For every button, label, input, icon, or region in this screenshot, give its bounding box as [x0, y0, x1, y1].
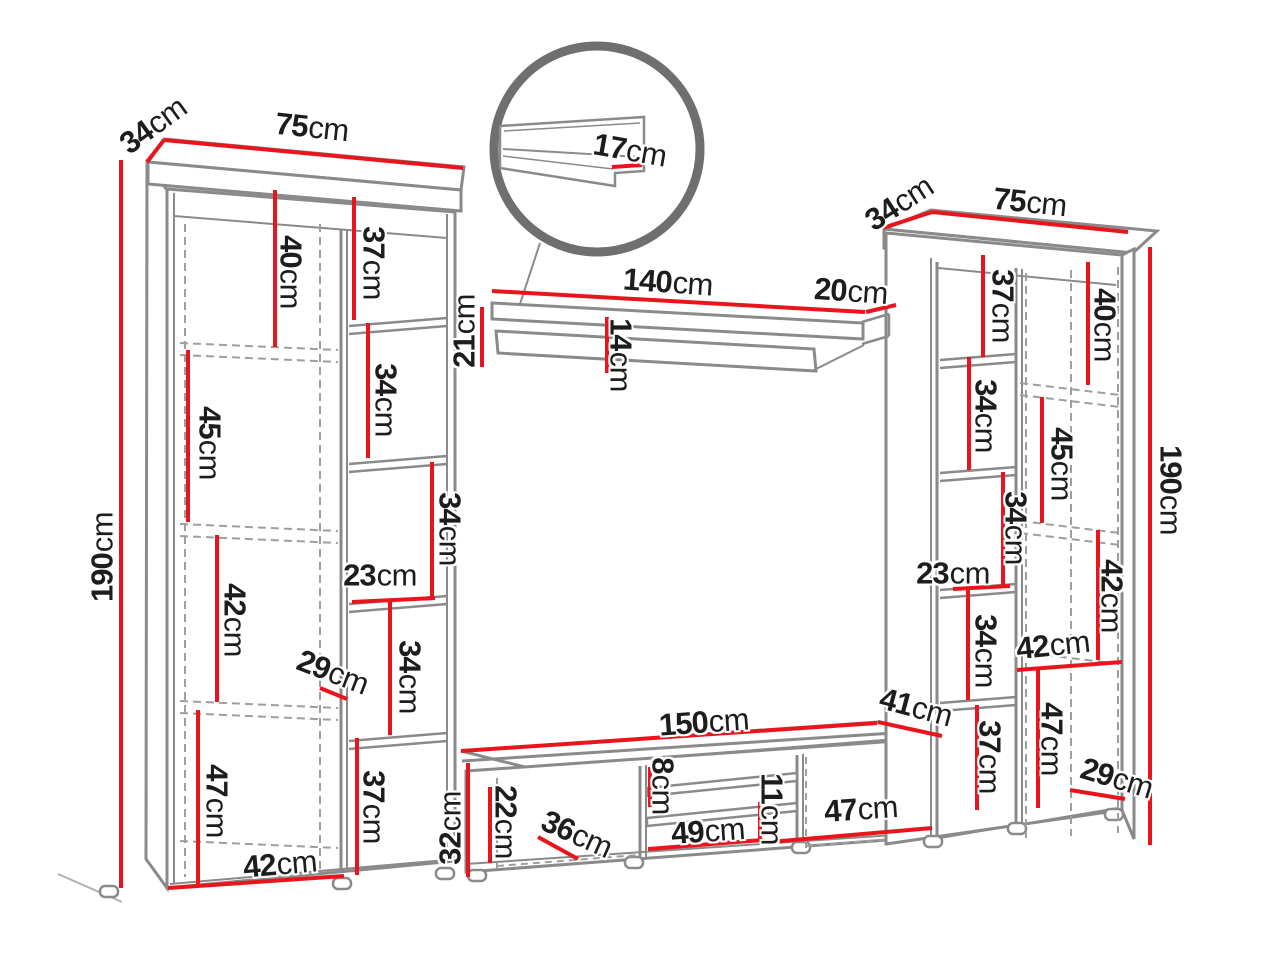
dim-value: 42 [242, 847, 277, 885]
dim-left-door-c3: 42cm [220, 583, 251, 657]
dim-unit: cm [646, 774, 681, 814]
dim-unit: cm [433, 791, 468, 831]
dim-unit: cm [707, 701, 750, 739]
dim-shelf-side-height: 21cm [449, 294, 480, 368]
dim-right-shelf-s3: 34cm [1001, 491, 1032, 565]
dim-value: 34 [969, 614, 1004, 646]
dim-tv-top-gap: 8cm [648, 757, 679, 815]
dim-value: 34 [393, 640, 428, 672]
dim-value: 150 [658, 704, 709, 742]
dim-value: 14 [604, 318, 639, 350]
dim-value: 47 [1035, 702, 1070, 734]
dim-unit: cm [1045, 461, 1080, 501]
dim-right-shelf-s5: 37cm [975, 720, 1006, 794]
dim-value: 37 [973, 720, 1008, 752]
dim-right-door-c3: 42cm [1097, 559, 1128, 633]
dim-shelf-width: 140cm [622, 263, 714, 300]
dim-unit: cm [489, 819, 524, 859]
dim-value: 23 [916, 556, 948, 591]
dim-unit: cm [973, 754, 1008, 794]
dim-tv-width: 150cm [658, 703, 750, 740]
dim-right-door-c2: 45cm [1047, 427, 1078, 501]
dim-unit: cm [950, 556, 990, 591]
dim-right-door-width: 42cm [1015, 626, 1092, 665]
dim-right-door-c4: 47cm [1037, 702, 1068, 776]
dim-unit: cm [671, 265, 714, 303]
dim-left-door-c1: 40cm [276, 235, 307, 309]
dim-value: 40 [1088, 288, 1123, 320]
dim-unit: cm [856, 789, 899, 827]
dim-left-door-c4: 47cm [202, 764, 233, 838]
dim-value: 49 [670, 814, 705, 851]
dim-value: 37 [357, 770, 392, 802]
dim-value: 20 [813, 271, 848, 308]
dim-unit: cm [755, 805, 790, 845]
dim-value: 42 [218, 583, 253, 615]
dim-unit: cm [377, 558, 417, 593]
dim-unit: cm [357, 260, 392, 300]
dim-unit: cm [969, 648, 1004, 688]
dim-unit: cm [357, 804, 392, 844]
dim-left-shelf-width: 23cm [343, 560, 417, 591]
dim-unit: cm [85, 512, 120, 552]
dim-value: 34 [969, 379, 1004, 411]
furniture-dimension-diagram: 34cm 75cm 190cm 40cm 45cm 42cm 47cm 42cm… [0, 0, 1280, 960]
dim-left-shelf-s1: 37cm [359, 226, 390, 300]
dim-right-cabinet-height: 190cm [1156, 445, 1187, 535]
dim-value: 21 [447, 335, 482, 367]
dim-unit: cm [846, 273, 889, 311]
dim-right-cabinet-width: 75cm [992, 183, 1069, 222]
dim-value: 140 [622, 261, 673, 299]
dim-value: 11 [755, 773, 790, 804]
dim-left-cabinet-height: 190cm [87, 512, 118, 602]
dim-unit: cm [433, 526, 468, 566]
dim-unit: cm [969, 413, 1004, 453]
dim-left-door-c2: 45cm [195, 406, 226, 480]
dim-unit: cm [275, 843, 318, 881]
dim-value: 75 [991, 181, 1027, 219]
dim-unit: cm [274, 269, 309, 309]
dim-unit: cm [1095, 593, 1130, 633]
dim-tv-bottom-gap: 11cm [757, 773, 788, 845]
dim-value: 47 [823, 792, 858, 829]
dim-shelf-depth: 20cm [813, 273, 889, 309]
dim-value: 75 [273, 106, 309, 144]
dim-value: 32 [433, 832, 468, 864]
dim-value: 22 [489, 785, 524, 817]
dim-right-shelf-s2: 34cm [971, 379, 1002, 453]
dim-unit: cm [307, 109, 351, 148]
dim-unit: cm [986, 303, 1021, 343]
dim-value: 40 [274, 235, 309, 267]
dim-right-shelf-s4: 34cm [971, 614, 1002, 688]
dim-value: 34 [433, 492, 468, 524]
dim-unit: cm [369, 397, 404, 437]
dim-left-cabinet-width: 75cm [274, 108, 351, 147]
dim-value: 190 [85, 553, 120, 602]
dim-value: 45 [193, 406, 228, 438]
dim-left-shelf-s5: 37cm [359, 770, 390, 844]
dim-value: 17 [591, 126, 629, 166]
dim-unit: cm [604, 352, 639, 392]
dim-unit: cm [218, 617, 253, 657]
dim-tv-height: 32cm [435, 791, 466, 865]
dim-value: 42 [1095, 559, 1130, 591]
dim-unit: cm [1048, 624, 1092, 663]
dim-unit: cm [1154, 495, 1189, 535]
dim-value: 47 [200, 764, 235, 796]
dim-unit: cm [193, 440, 228, 480]
dim-value: 37 [357, 226, 392, 258]
dim-value: 45 [1045, 427, 1080, 459]
dim-shelf-front-height: 14cm [606, 318, 637, 392]
dim-left-door-width: 42cm [242, 845, 318, 882]
dim-value: 37 [986, 269, 1021, 301]
dim-unit: cm [1035, 736, 1070, 776]
dim-value: 34 [369, 363, 404, 395]
dim-tv-right-opening: 47cm [823, 791, 899, 827]
dim-right-shelf-s1: 37cm [988, 269, 1019, 343]
dim-unit: cm [624, 132, 670, 173]
dim-right-shelf-width: 23cm [916, 558, 990, 589]
dim-unit: cm [1088, 322, 1123, 362]
dim-value: 34 [999, 491, 1034, 523]
dim-right-door-c1: 40cm [1090, 288, 1121, 362]
dim-tv-opening-height: 22cm [491, 785, 522, 859]
dim-unit: cm [999, 525, 1034, 565]
dim-unit: cm [703, 811, 746, 849]
dim-value: 190 [1154, 445, 1189, 494]
dim-tv-center-width: 49cm [670, 813, 746, 849]
dim-unit: cm [1025, 184, 1069, 223]
dim-left-shelf-s2: 34cm [371, 363, 402, 437]
dim-value: 8 [646, 757, 681, 773]
dim-unit: cm [200, 798, 235, 838]
dim-left-shelf-s4: 34cm [395, 640, 426, 714]
dim-value: 23 [343, 558, 375, 593]
dim-unit: cm [447, 294, 482, 334]
dim-left-shelf-s3: 34cm [435, 492, 466, 566]
dim-value: 42 [1014, 628, 1050, 666]
dim-unit: cm [393, 674, 428, 714]
